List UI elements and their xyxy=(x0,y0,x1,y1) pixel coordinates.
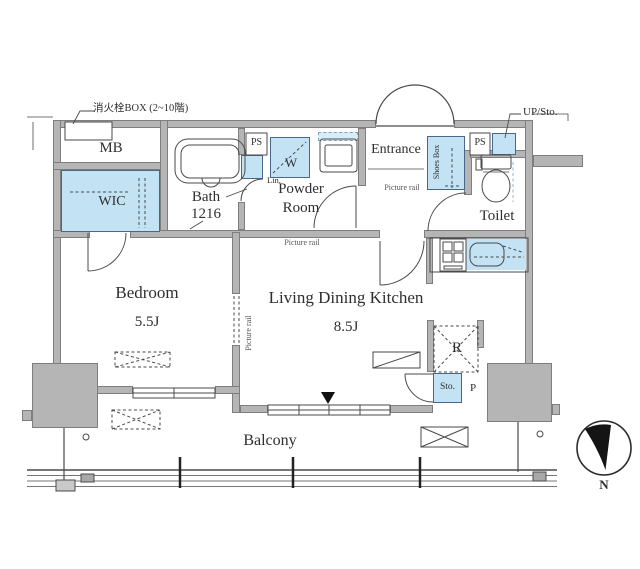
vent-grill xyxy=(81,474,94,482)
label-bath: Bath xyxy=(176,188,236,207)
label-up-storage: UP/Sto. xyxy=(523,106,583,120)
label-pipe-space: P xyxy=(464,382,482,396)
label-refrigerator: R xyxy=(442,339,472,358)
sliding-door-rails xyxy=(268,405,390,415)
service-space-x xyxy=(115,352,170,367)
label-bedroom: Bedroom xyxy=(87,282,207,303)
label-entrance: Entrance xyxy=(346,141,446,159)
storage-door-arc xyxy=(405,374,433,402)
ac-outdoor-unit-x xyxy=(421,427,468,447)
upsto-leader xyxy=(505,114,521,138)
bedroom-window-rail xyxy=(133,388,215,398)
label-shoes-box: Shoes Box xyxy=(432,122,442,202)
stove-burner xyxy=(443,242,452,251)
label-ps-right: PS xyxy=(470,137,490,150)
label-compass-north: N xyxy=(592,477,616,493)
label-picture-rail-ldk: Picture rail xyxy=(274,238,330,248)
sink-bowl xyxy=(470,243,504,266)
sink-dashed xyxy=(503,246,522,252)
entrance-door-arc xyxy=(376,85,454,126)
label-ldk: Living Dining Kitchen xyxy=(236,287,456,308)
table-diagonal xyxy=(373,352,420,368)
stove-burner xyxy=(454,242,463,251)
ldk-door-arc xyxy=(380,241,424,285)
wic-door-arc xyxy=(88,233,126,271)
label-ps-left: PS xyxy=(246,137,267,150)
toilet-tank xyxy=(481,155,511,169)
bathtub-inner xyxy=(181,145,239,178)
corridor-line xyxy=(27,117,53,150)
label-washer: W xyxy=(276,155,306,171)
balcony-drain xyxy=(537,431,543,437)
stove-burner xyxy=(454,253,463,262)
label-picture-rail-hall: Picture rail xyxy=(376,183,428,193)
stove-burner xyxy=(443,253,452,262)
label-bedroom-size: 5.5J xyxy=(87,313,207,332)
label-fire-hydrant-box: 消火栓BOX (2~10階) xyxy=(93,102,253,115)
shoes-box-dashed xyxy=(445,148,461,188)
ac-unit-x xyxy=(112,410,160,429)
label-powder-room: Powder Room xyxy=(266,180,336,218)
label-toilet: Toilet xyxy=(457,207,537,226)
label-storage: Sto. xyxy=(433,382,462,394)
railing-post xyxy=(180,457,420,488)
opening-direction-marker xyxy=(321,392,335,404)
label-bath-size: 1216 xyxy=(176,205,236,224)
label-wic: WIC xyxy=(77,193,147,211)
vent-grill xyxy=(533,472,546,481)
floor-plan: 消火栓BOX (2~10階) MB WIC Bath 1216 PS W Lin… xyxy=(0,0,640,569)
fire-hydrant-box xyxy=(65,122,112,140)
label-meter-box: MB xyxy=(81,139,141,158)
compass-icon xyxy=(577,421,631,475)
stove-grill xyxy=(444,266,462,269)
railing-base xyxy=(56,480,75,491)
toilet-bowl xyxy=(482,170,510,202)
label-ldk-size: 8.5J xyxy=(236,318,456,337)
balcony-drain xyxy=(83,434,89,440)
label-balcony: Balcony xyxy=(220,431,320,451)
